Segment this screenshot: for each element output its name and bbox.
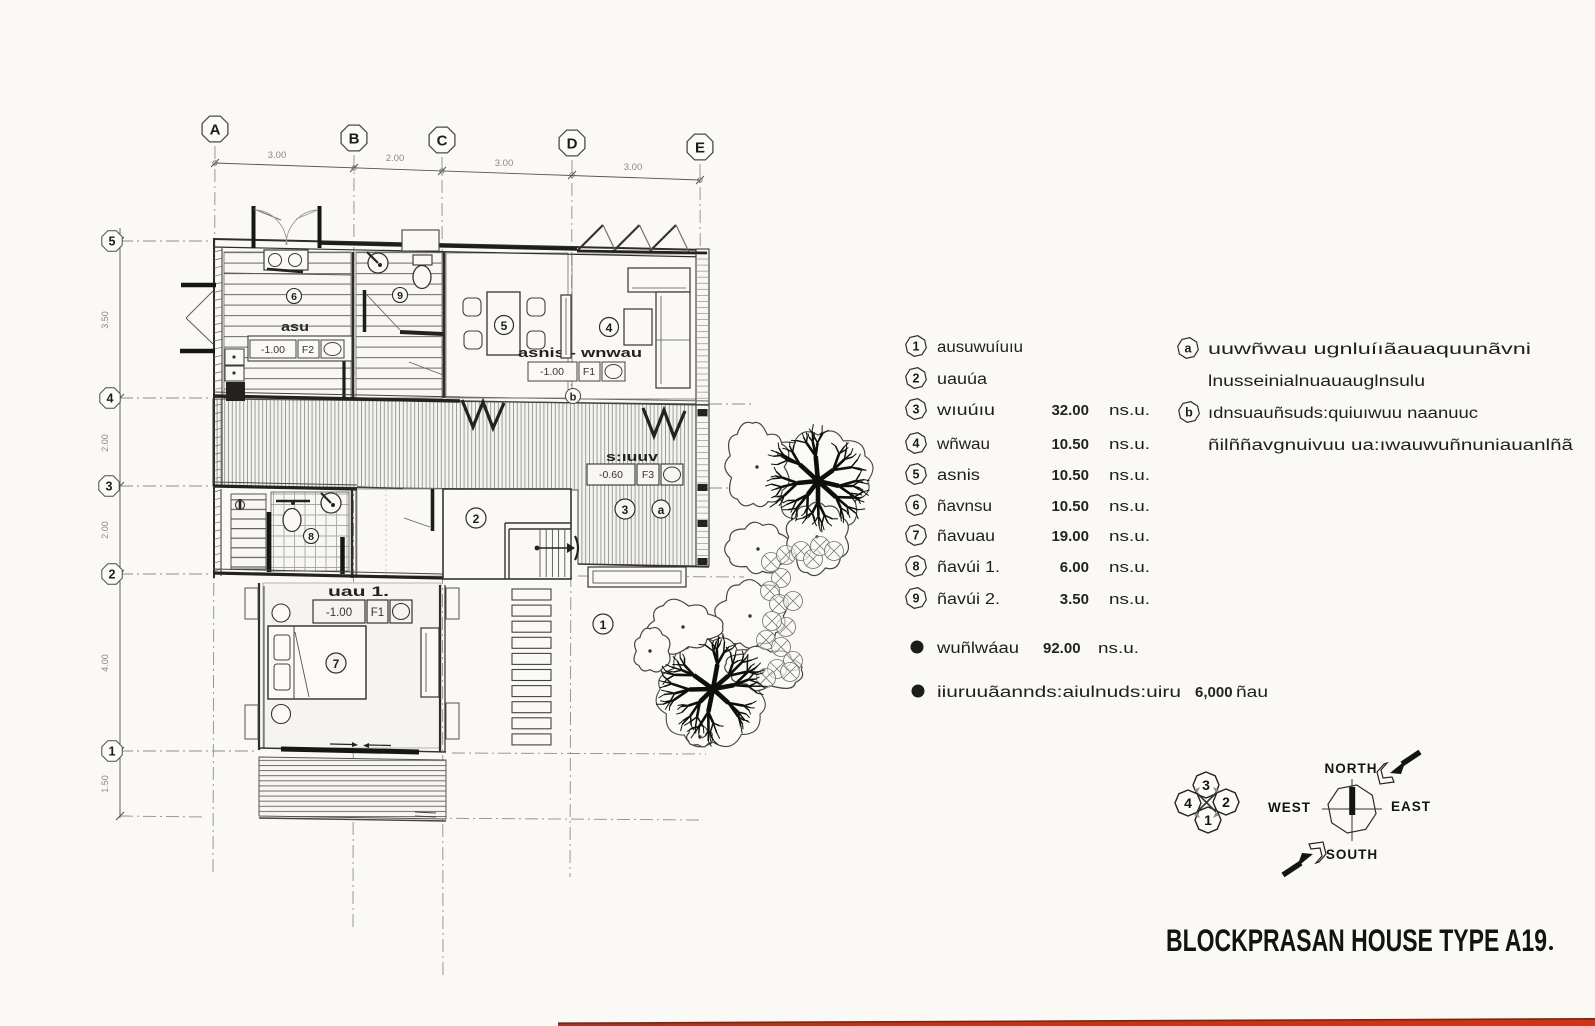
svg-text:6,000: 6,000 [1195,684,1233,701]
svg-text:9: 9 [913,592,920,606]
svg-text:92.00: 92.00 [1043,640,1081,657]
svg-text:7: 7 [913,529,920,543]
svg-text:lnusseinialnuauauglnsulu: lnusseinialnuauauglnsulu [1208,373,1425,390]
svg-text:SOUTH: SOUTH [1326,847,1378,862]
svg-text:asu: asu [281,319,309,334]
svg-text:ns.u.: ns.u. [1109,467,1150,484]
svg-text:1: 1 [109,745,116,759]
svg-text:5: 5 [913,468,920,482]
svg-text:4: 4 [1184,795,1192,811]
svg-text:2: 2 [109,568,116,582]
svg-text:ns.u.: ns.u. [1109,436,1150,453]
svg-text:4: 4 [913,437,920,451]
svg-text:ñau: ñau [1236,684,1268,701]
svg-text:19.00: 19.00 [1051,528,1089,545]
svg-text:F2: F2 [302,344,314,356]
svg-text:uauúa: uauúa [937,371,987,388]
svg-text:8: 8 [308,531,314,543]
svg-text:6: 6 [913,499,920,513]
svg-text:1: 1 [600,618,607,632]
svg-text:wuñlwáau: wuñlwáau [936,640,1019,657]
svg-text:4: 4 [606,321,613,335]
svg-text:BLOCKPRASAN HOUSE TYPE A19: BLOCKPRASAN HOUSE TYPE A19 [1166,922,1547,958]
svg-text:5: 5 [501,319,508,333]
svg-text:1.50: 1.50 [100,775,110,793]
svg-text:wıuúıu: wıuúıu [936,402,995,419]
svg-text:NORTH: NORTH [1325,761,1378,776]
svg-text:6: 6 [291,291,297,303]
svg-text:ns.u.: ns.u. [1098,640,1139,657]
svg-text:3: 3 [106,480,113,494]
svg-text:3.00: 3.00 [268,150,287,161]
svg-text:8: 8 [913,560,920,574]
svg-text:3: 3 [913,403,920,417]
svg-text:ausuwuíuıu: ausuwuíuıu [937,339,1023,356]
svg-text:b: b [1185,406,1193,420]
svg-text:3: 3 [622,503,629,517]
svg-text:a: a [658,503,665,517]
svg-text:ıdnsuauñsuds:quiuıwuu naanuuc: ıdnsuauñsuds:quiuıwuu naanuuc [1208,405,1478,422]
svg-text:10.50: 10.50 [1051,467,1089,484]
svg-text:E: E [695,139,705,156]
svg-text:F1: F1 [371,607,384,619]
svg-text:ñavnsu: ñavnsu [937,498,992,515]
svg-text:1: 1 [913,340,920,354]
svg-text:-0.60: -0.60 [599,469,623,481]
svg-text:ñilññavgnuivuu ua:ıwauwuñnunia: ñilññavgnuivuu ua:ıwauwuñnuniauanlñã [1208,437,1573,454]
svg-text:5: 5 [109,235,116,249]
svg-text:D: D [567,135,578,152]
svg-text:ns.u.: ns.u. [1109,498,1150,515]
svg-text:asnis - wnwau: asnis - wnwau [518,345,642,360]
svg-text:F3: F3 [642,469,654,481]
svg-text:EAST: EAST [1391,799,1431,814]
svg-text:2: 2 [1222,794,1230,810]
svg-text:ns.u.: ns.u. [1109,559,1150,576]
svg-text:2: 2 [473,512,480,526]
svg-text:2.00: 2.00 [100,434,110,452]
svg-text:3.50: 3.50 [100,311,110,329]
svg-text:-1.00: -1.00 [261,344,285,356]
svg-text:A: A [210,121,221,138]
svg-text:2: 2 [913,372,920,386]
svg-text:asnis: asnis [937,467,980,484]
svg-text:10.50: 10.50 [1051,436,1089,453]
svg-text:32.00: 32.00 [1051,402,1089,419]
svg-text:7: 7 [333,657,340,671]
svg-text:4: 4 [107,392,114,406]
svg-text:10.50: 10.50 [1051,498,1089,515]
svg-text:ns.u.: ns.u. [1109,591,1150,608]
svg-text:ñavúi 2.: ñavúi 2. [937,591,1000,608]
svg-text:ns.u.: ns.u. [1109,402,1150,419]
svg-text:3: 3 [1202,777,1210,793]
svg-text:uau 1.: uau 1. [328,584,389,599]
svg-text:-1.00: -1.00 [326,607,352,619]
svg-text:WEST: WEST [1268,800,1311,815]
svg-text:B: B [349,130,360,147]
svg-text:a: a [1185,342,1193,356]
svg-text:2.00: 2.00 [100,521,110,539]
svg-text:ñavúi 1.: ñavúi 1. [937,559,1000,576]
svg-text:6.00: 6.00 [1060,559,1089,576]
svg-text:3.50: 3.50 [1060,591,1089,608]
svg-text:ns.u.: ns.u. [1109,528,1150,545]
svg-text:3.00: 3.00 [624,162,643,173]
svg-text:3.00: 3.00 [495,158,514,169]
svg-text:2.00: 2.00 [386,153,405,164]
svg-text:s:ıuuv: s:ıuuv [606,449,659,464]
svg-text:-1.00: -1.00 [540,366,564,378]
svg-text:wñwau: wñwau [936,436,990,453]
svg-text:9: 9 [397,290,403,302]
svg-text:C: C [437,132,448,149]
svg-text:b: b [570,392,577,404]
svg-text:1: 1 [1204,812,1212,828]
svg-text:4.00: 4.00 [100,654,110,672]
svg-text:iiuruuãannds:aiulnuds:uiru: iiuruuãannds:aiulnuds:uiru [937,684,1181,701]
svg-text:uuwñwau ugnluíıãauaquunãvni: uuwñwau ugnluíıãauaquunãvni [1208,341,1531,358]
svg-text:ñavuau: ñavuau [937,528,995,545]
svg-text:F1: F1 [583,366,595,378]
